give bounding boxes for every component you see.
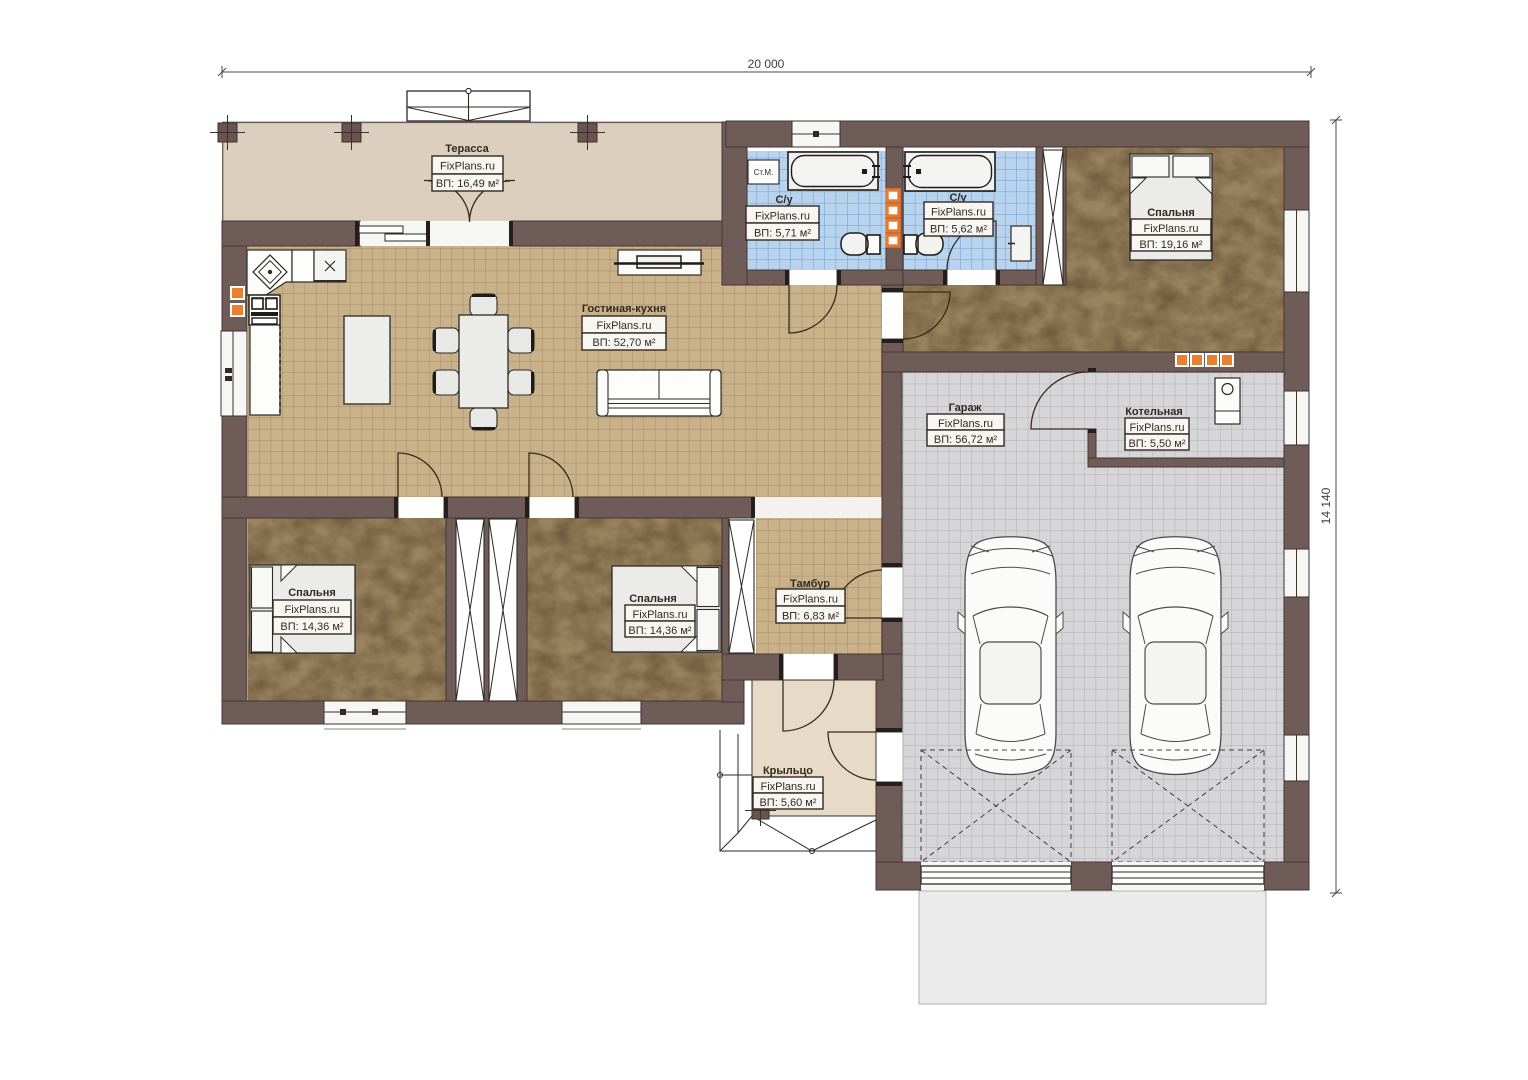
svg-text:ВП: 14,36 м²: ВП: 14,36 м²: [280, 621, 344, 633]
svg-text:FixPlans.ru: FixPlans.ru: [440, 161, 495, 173]
svg-text:Ст.М.: Ст.М.: [754, 168, 774, 177]
svg-text:ВП: 5,50 м²: ВП: 5,50 м²: [1128, 438, 1185, 450]
svg-text:ВП: 5,60 м²: ВП: 5,60 м²: [759, 797, 816, 809]
svg-text:Спальня: Спальня: [1147, 207, 1195, 219]
svg-text:С/у: С/у: [775, 194, 793, 206]
svg-text:Гараж: Гараж: [949, 402, 982, 414]
svg-text:ВП: 19,16 м²: ВП: 19,16 м²: [1139, 239, 1203, 251]
svg-text:FixPlans.ru: FixPlans.ru: [938, 418, 993, 430]
svg-text:FixPlans.ru: FixPlans.ru: [1129, 422, 1184, 434]
svg-text:ВП: 5,71 м²: ВП: 5,71 м²: [754, 228, 811, 240]
svg-text:FixPlans.ru: FixPlans.ru: [596, 320, 651, 332]
svg-text:Крыльцо: Крыльцо: [763, 765, 813, 777]
svg-text:Спальня: Спальня: [629, 593, 677, 605]
svg-text:Тамбур: Тамбур: [790, 578, 830, 590]
svg-text:Спальня: Спальня: [288, 587, 336, 599]
svg-text:FixPlans.ru: FixPlans.ru: [1143, 223, 1198, 235]
svg-text:ВП: 52,70 м²: ВП: 52,70 м²: [592, 337, 656, 349]
svg-text:FixPlans.ru: FixPlans.ru: [783, 594, 838, 606]
svg-text:FixPlans.ru: FixPlans.ru: [760, 781, 815, 793]
svg-text:ВП: 6,83 м²: ВП: 6,83 м²: [782, 611, 839, 623]
svg-text:ВП: 5,62 м²: ВП: 5,62 м²: [930, 224, 987, 236]
svg-text:20 000: 20 000: [748, 57, 785, 71]
svg-text:Котельная: Котельная: [1125, 406, 1183, 418]
svg-text:FixPlans.ru: FixPlans.ru: [284, 604, 339, 616]
svg-text:FixPlans.ru: FixPlans.ru: [931, 207, 986, 219]
svg-text:ВП: 56,72 м²: ВП: 56,72 м²: [934, 434, 998, 446]
svg-text:Терасса: Терасса: [445, 143, 489, 155]
svg-text:FixPlans.ru: FixPlans.ru: [755, 211, 810, 223]
svg-text:FixPlans.ru: FixPlans.ru: [632, 609, 687, 621]
svg-text:14 140: 14 140: [1319, 487, 1333, 524]
svg-text:ВП: 14,36 м²: ВП: 14,36 м²: [628, 625, 692, 637]
svg-text:ВП: 16,49 м²: ВП: 16,49 м²: [436, 178, 500, 190]
svg-text:Гостиная-кухня: Гостиная-кухня: [582, 303, 666, 315]
